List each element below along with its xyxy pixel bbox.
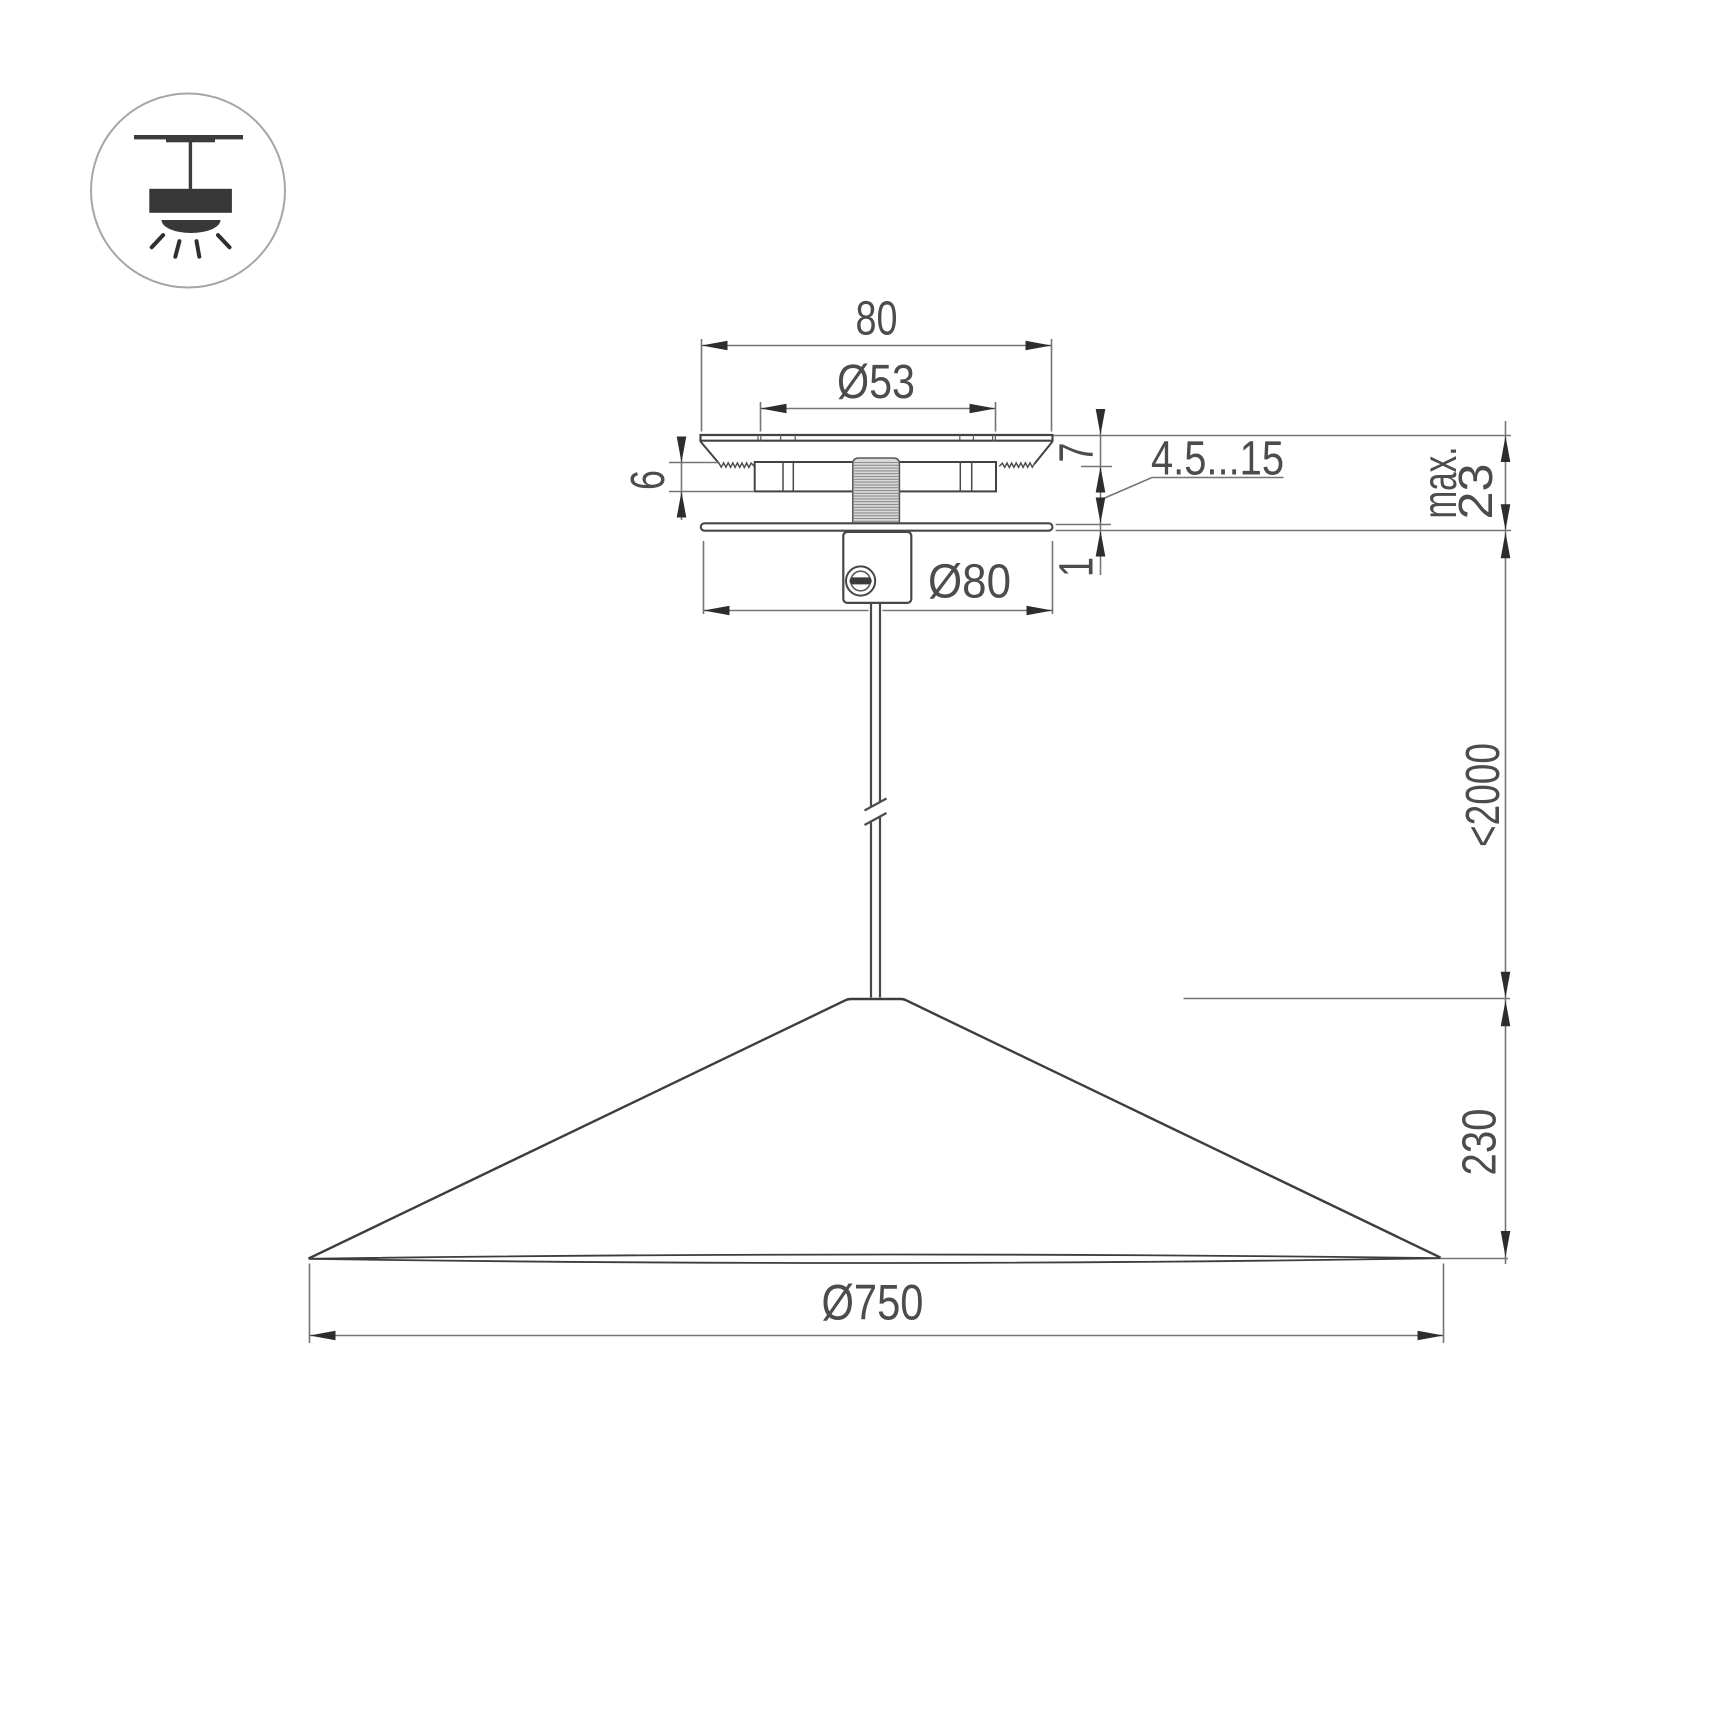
svg-text:4.5...15: 4.5...15 (1151, 433, 1284, 486)
svg-text:Ø53: Ø53 (837, 356, 915, 409)
svg-text:80: 80 (856, 293, 898, 346)
svg-text:Ø750: Ø750 (822, 1275, 924, 1331)
svg-text:6: 6 (622, 470, 675, 490)
svg-text:1: 1 (1051, 557, 1104, 577)
svg-text:23: 23 (1450, 464, 1503, 520)
svg-text:<2000: <2000 (1457, 743, 1510, 847)
svg-text:230: 230 (1454, 1109, 1507, 1176)
svg-text:7: 7 (1051, 443, 1104, 463)
svg-text:Ø80: Ø80 (928, 556, 1011, 609)
